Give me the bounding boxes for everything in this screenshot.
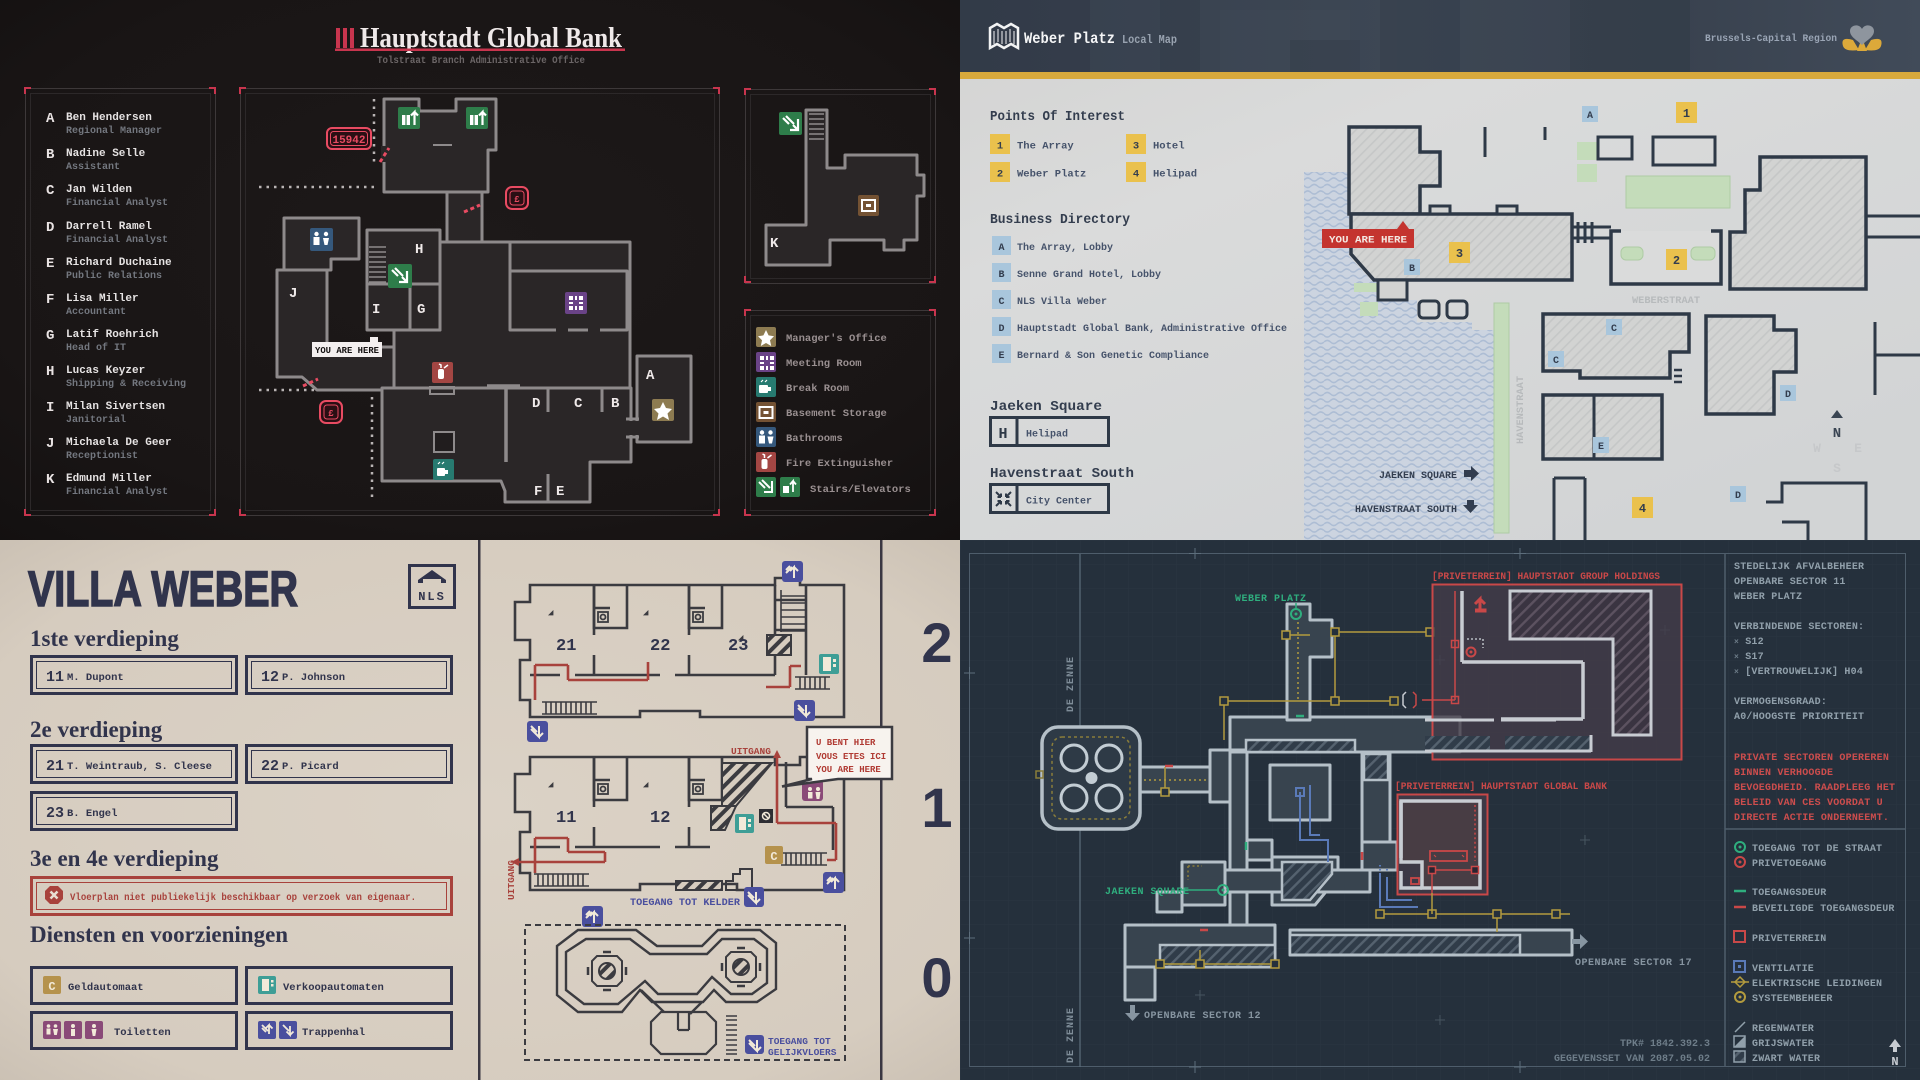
svg-text:Michaela De Geer: Michaela De Geer (66, 437, 172, 449)
svg-text:PRIVETOEGANG: PRIVETOEGANG (1752, 859, 1826, 870)
svg-text:J: J (46, 436, 54, 452)
svg-text:23: 23 (728, 637, 748, 656)
svg-text:Tolstraat Branch Administrativ: Tolstraat Branch Administrative Office (377, 55, 585, 67)
svg-text:I: I (46, 400, 54, 416)
svg-text:Points Of Interest: Points Of Interest (990, 110, 1125, 125)
svg-text:Jaeken Square: Jaeken Square (990, 400, 1102, 415)
svg-text:D: D (1785, 390, 1791, 401)
svg-text:E: E (556, 484, 564, 500)
svg-text:Weber Platz: Weber Platz (1024, 30, 1115, 48)
svg-text:GEGEVENSSET VAN 2087.05.02: GEGEVENSSET VAN 2087.05.02 (1554, 1054, 1710, 1065)
svg-text:JAEKEN SQUARE: JAEKEN SQUARE (1105, 887, 1190, 898)
svg-text:Vloerplan niet publiekelijk be: Vloerplan niet publiekelijk beschikbaar … (70, 892, 416, 904)
svg-text:12: 12 (650, 809, 670, 828)
svg-text:Financial Analyst: Financial Analyst (66, 486, 168, 498)
svg-text:E: E (46, 256, 54, 272)
svg-text:Geldautomaat: Geldautomaat (68, 982, 144, 994)
svg-text:A: A (998, 243, 1004, 254)
svg-text:NLS: NLS (418, 590, 446, 604)
svg-text:Public Relations: Public Relations (66, 270, 162, 282)
svg-text:PRIVETERREIN: PRIVETERREIN (1752, 934, 1826, 945)
svg-text:BEVOEGDHEID. RAADPLEEG HET: BEVOEGDHEID. RAADPLEEG HET (1734, 783, 1895, 794)
svg-text:× [VERTROUWELIJK] H04: × [VERTROUWELIJK] H04 (1734, 666, 1863, 678)
svg-text:15942: 15942 (332, 135, 365, 147)
svg-text:STEDELIJK AFVALBEHEER: STEDELIJK AFVALBEHEER (1734, 562, 1864, 573)
svg-text:Bathrooms: Bathrooms (786, 433, 843, 445)
svg-text:Diensten en voorzieningen: Diensten en voorzieningen (30, 922, 288, 947)
svg-text:◢: ◢ (548, 780, 554, 790)
svg-text:E: E (998, 351, 1004, 362)
svg-text:Assistant: Assistant (66, 161, 120, 173)
svg-text:ZWART WATER: ZWART WATER (1752, 1054, 1820, 1065)
svg-text:Financial Analyst: Financial Analyst (66, 234, 168, 246)
svg-text:Fire Extinguisher: Fire Extinguisher (786, 458, 893, 470)
svg-text:H: H (415, 242, 423, 258)
svg-text:OPENBARE SECTOR 11: OPENBARE SECTOR 11 (1734, 577, 1846, 588)
svg-text:Receptionist: Receptionist (66, 450, 138, 462)
svg-text:G: G (46, 328, 54, 344)
svg-text:A0/HOOGSTE PRIORITEIT: A0/HOOGSTE PRIORITEIT (1734, 711, 1864, 723)
svg-text:B: B (611, 396, 620, 412)
svg-text:Shipping & Receiving: Shipping & Receiving (66, 378, 186, 390)
svg-text:Havenstraat South: Havenstraat South (990, 467, 1134, 482)
svg-text:22: 22 (650, 637, 670, 656)
svg-text:ELEKTRISCHE LEIDINGEN: ELEKTRISCHE LEIDINGEN (1752, 979, 1882, 990)
svg-text:B: B (46, 147, 55, 163)
svg-text:T. Weintraub, S. Cleese: T. Weintraub, S. Cleese (67, 761, 212, 773)
svg-text:TPK# 1842.392.3: TPK# 1842.392.3 (1620, 1039, 1710, 1050)
svg-text:A: A (1587, 111, 1593, 122)
svg-text:M. Dupont: M. Dupont (67, 672, 124, 684)
svg-text:The Array, Lobby: The Array, Lobby (1017, 242, 1113, 254)
svg-text:F: F (46, 292, 54, 308)
svg-text:1: 1 (921, 776, 952, 839)
svg-text:F: F (534, 484, 542, 500)
svg-text:Helipad: Helipad (1153, 169, 1197, 181)
svg-text:21: 21 (46, 758, 64, 775)
svg-text:The Array: The Array (1017, 141, 1074, 153)
svg-text:Latif Roehrich: Latif Roehrich (66, 329, 158, 341)
svg-text:OPENBARE SECTOR 17: OPENBARE SECTOR 17 (1575, 958, 1692, 969)
svg-text:Toiletten: Toiletten (114, 1027, 171, 1039)
svg-text:B. Engel: B. Engel (67, 808, 117, 820)
svg-text:3: 3 (1456, 247, 1463, 261)
svg-text:TOEGANG TOT DE STRAAT: TOEGANG TOT DE STRAAT (1752, 844, 1882, 855)
svg-text:Bernard & Son Genetic Complian: Bernard & Son Genetic Compliance (1017, 350, 1209, 362)
svg-text:Local Map: Local Map (1122, 34, 1177, 47)
svg-text:1ste verdieping: 1ste verdieping (30, 626, 179, 651)
svg-text:C: C (46, 183, 55, 199)
svg-text:Meeting Room: Meeting Room (786, 358, 862, 370)
svg-text:G: G (417, 302, 425, 318)
svg-text:Janitorial: Janitorial (66, 414, 126, 426)
svg-text:Brussels-Capital Region: Brussels-Capital Region (1705, 33, 1837, 45)
svg-text:£: £ (514, 195, 520, 205)
svg-text:Trappenhal: Trappenhal (302, 1027, 365, 1039)
svg-text:Financial Analyst: Financial Analyst (66, 197, 168, 209)
svg-text:P. Picard: P. Picard (282, 761, 339, 773)
svg-text:1: 1 (1683, 107, 1690, 121)
svg-text:TOEGANG TOT KELDER: TOEGANG TOT KELDER (630, 898, 740, 909)
svg-text:A: A (646, 368, 655, 384)
svg-text:K: K (46, 472, 55, 488)
svg-text:3: 3 (1133, 141, 1139, 153)
svg-text:◢: ◢ (643, 608, 649, 618)
svg-text:£: £ (328, 409, 334, 419)
svg-text:HAVENSTRAAT SOUTH: HAVENSTRAAT SOUTH (1355, 505, 1457, 516)
svg-text:HAVENSTRAAT: HAVENSTRAAT (1516, 376, 1527, 444)
svg-text:JAEKEN SQUARE: JAEKEN SQUARE (1379, 471, 1457, 482)
svg-text:SYSTEEMBEHEER: SYSTEEMBEHEER (1752, 994, 1833, 1005)
svg-text:Darrell Ramel: Darrell Ramel (66, 221, 152, 233)
svg-text:DIRECTE ACTIE ONDERNEEMT.: DIRECTE ACTIE ONDERNEEMT. (1734, 813, 1889, 824)
svg-text:BEVEILIGDE TOEGANGSDEUR: BEVEILIGDE TOEGANGSDEUR (1752, 904, 1895, 915)
svg-text:C: C (1611, 324, 1617, 335)
svg-text:◢: ◢ (548, 608, 554, 618)
svg-text:Richard Duchaine: Richard Duchaine (66, 257, 172, 269)
svg-text:Basement Storage: Basement Storage (786, 408, 887, 420)
svg-text:E: E (1598, 442, 1604, 453)
svg-text:Jan Wilden: Jan Wilden (66, 184, 132, 196)
svg-text:Verkoopautomaten: Verkoopautomaten (283, 982, 384, 994)
svg-text:2e verdieping: 2e verdieping (30, 717, 163, 742)
svg-text:2: 2 (997, 169, 1003, 181)
svg-text:Milan Sivertsen: Milan Sivertsen (66, 401, 165, 413)
svg-text:B: B (1409, 264, 1415, 275)
svg-text:TOEGANG TOT: TOEGANG TOT (768, 1036, 831, 1047)
svg-text:B: B (998, 270, 1004, 281)
svg-text:C: C (998, 297, 1004, 308)
svg-text:S: S (1833, 461, 1841, 476)
svg-text:4: 4 (1133, 169, 1139, 181)
svg-text:Senne Grand Hotel, Lobby: Senne Grand Hotel, Lobby (1017, 269, 1161, 281)
svg-text:WEBERSTRAAT: WEBERSTRAAT (1632, 296, 1700, 307)
svg-text:Helipad: Helipad (1026, 429, 1068, 441)
svg-text:NLS Villa Weber: NLS Villa Weber (1017, 296, 1107, 308)
svg-text:0: 0 (921, 946, 952, 1009)
svg-text:[PRIVETERREIN] HAUPTSTADT GLOB: [PRIVETERREIN] HAUPTSTADT GLOBAL BANK (1395, 781, 1607, 793)
svg-text:W: W (1813, 441, 1821, 456)
svg-text:Lucas Keyzer: Lucas Keyzer (66, 365, 145, 377)
svg-text:J: J (289, 286, 297, 302)
svg-text:× S12: × S12 (1734, 637, 1764, 648)
svg-text:Hotel: Hotel (1153, 141, 1185, 153)
svg-text:A: A (46, 111, 55, 127)
svg-text:Manager's Office: Manager's Office (786, 333, 887, 345)
svg-text:BELEID VAN CES VOORDAT U: BELEID VAN CES VOORDAT U (1734, 798, 1883, 809)
svg-text:VENTILATIE: VENTILATIE (1752, 964, 1814, 975)
svg-text:U BENT HIER: U BENT HIER (816, 738, 876, 748)
svg-text:D: D (532, 396, 540, 412)
svg-text:VILLA WEBER: VILLA WEBER (28, 561, 298, 617)
svg-text:N: N (1833, 426, 1841, 442)
svg-text:Edmund Miller: Edmund Miller (66, 473, 152, 485)
svg-text:× S17: × S17 (1734, 652, 1764, 663)
svg-text:City Center: City Center (1026, 496, 1092, 508)
svg-text:Head of IT: Head of IT (66, 342, 126, 354)
svg-text:D: D (998, 324, 1004, 335)
svg-text:OPENBARE SECTOR 12: OPENBARE SECTOR 12 (1144, 1011, 1261, 1022)
svg-text:VOUS ETES ICI: VOUS ETES ICI (816, 752, 886, 762)
svg-text:4: 4 (1639, 502, 1646, 516)
svg-text:REGENWATER: REGENWATER (1752, 1024, 1814, 1035)
svg-text:2: 2 (1673, 254, 1680, 268)
svg-text:UITGANG: UITGANG (731, 746, 771, 757)
svg-text:H: H (46, 364, 54, 380)
svg-text:GELIJKVLOERS: GELIJKVLOERS (768, 1047, 837, 1058)
svg-text:C: C (574, 396, 583, 412)
svg-text:H: H (998, 426, 1007, 443)
svg-text:C: C (770, 850, 777, 864)
svg-text:YOU ARE HERE: YOU ARE HERE (816, 765, 881, 775)
svg-text:D: D (46, 220, 54, 236)
svg-text:22: 22 (261, 758, 279, 775)
svg-text:D: D (1735, 491, 1741, 502)
svg-text:Nadine Selle: Nadine Selle (66, 148, 146, 160)
svg-text:UITGANG: UITGANG (506, 860, 517, 900)
svg-text:P. Johnson: P. Johnson (282, 672, 345, 684)
svg-text:GRIJSWATER: GRIJSWATER (1752, 1039, 1814, 1050)
svg-text:◢: ◢ (643, 780, 649, 790)
svg-text:YOU ARE HERE: YOU ARE HERE (1329, 236, 1407, 247)
svg-text:2: 2 (921, 611, 952, 674)
svg-text:YOU ARE HERE: YOU ARE HERE (315, 345, 379, 356)
svg-text:Hauptstadt Global Bank, Admini: Hauptstadt Global Bank, Administrative O… (1017, 323, 1287, 335)
svg-text:1: 1 (997, 141, 1003, 153)
svg-text:23: 23 (46, 805, 64, 822)
svg-text:Lisa Miller: Lisa Miller (66, 293, 139, 305)
svg-text:Stairs/Elevators: Stairs/Elevators (810, 484, 911, 496)
svg-text:21: 21 (556, 637, 576, 656)
svg-text:I: I (372, 302, 380, 318)
svg-text:[PRIVETERREIN] HAUPTSTADT GROU: [PRIVETERREIN] HAUPTSTADT GROUP HOLDINGS (1432, 571, 1660, 583)
svg-text:11: 11 (46, 669, 64, 686)
svg-text:Ben Hendersen: Ben Hendersen (66, 112, 152, 124)
svg-text:TOEGANGSDEUR: TOEGANGSDEUR (1752, 888, 1826, 899)
svg-text:DE ZENNE: DE ZENNE (1066, 1007, 1077, 1063)
svg-text:11: 11 (556, 809, 576, 828)
svg-text:Break Room: Break Room (786, 383, 849, 395)
svg-text:PRIVATE SECTOREN OPEREREN: PRIVATE SECTOREN OPEREREN (1734, 753, 1889, 764)
svg-text:Accountant: Accountant (66, 307, 126, 318)
svg-text:C: C (1553, 356, 1559, 367)
svg-text:VERMOGENSGRAAD:: VERMOGENSGRAAD: (1734, 697, 1827, 708)
svg-text:C: C (48, 980, 55, 994)
svg-text:K: K (770, 236, 779, 252)
svg-text:3e en 4e verdieping: 3e en 4e verdieping (30, 846, 219, 871)
svg-text:WEBER PLATZ: WEBER PLATZ (1235, 594, 1307, 605)
svg-text:Weber Platz: Weber Platz (1017, 169, 1086, 181)
svg-text:12: 12 (261, 669, 279, 686)
svg-text:DE ZENNE: DE ZENNE (1066, 656, 1077, 712)
svg-text:BINNEN VERHOOGDE: BINNEN VERHOOGDE (1734, 768, 1833, 779)
svg-text:Regional Manager: Regional Manager (66, 125, 162, 137)
svg-text:N: N (1891, 1055, 1898, 1069)
svg-text:Business Directory: Business Directory (990, 213, 1130, 228)
svg-text:VERBINDENDE SECTOREN:: VERBINDENDE SECTOREN: (1734, 622, 1864, 633)
svg-text:E: E (1854, 441, 1862, 456)
svg-text:WEBER PLATZ: WEBER PLATZ (1734, 592, 1802, 603)
